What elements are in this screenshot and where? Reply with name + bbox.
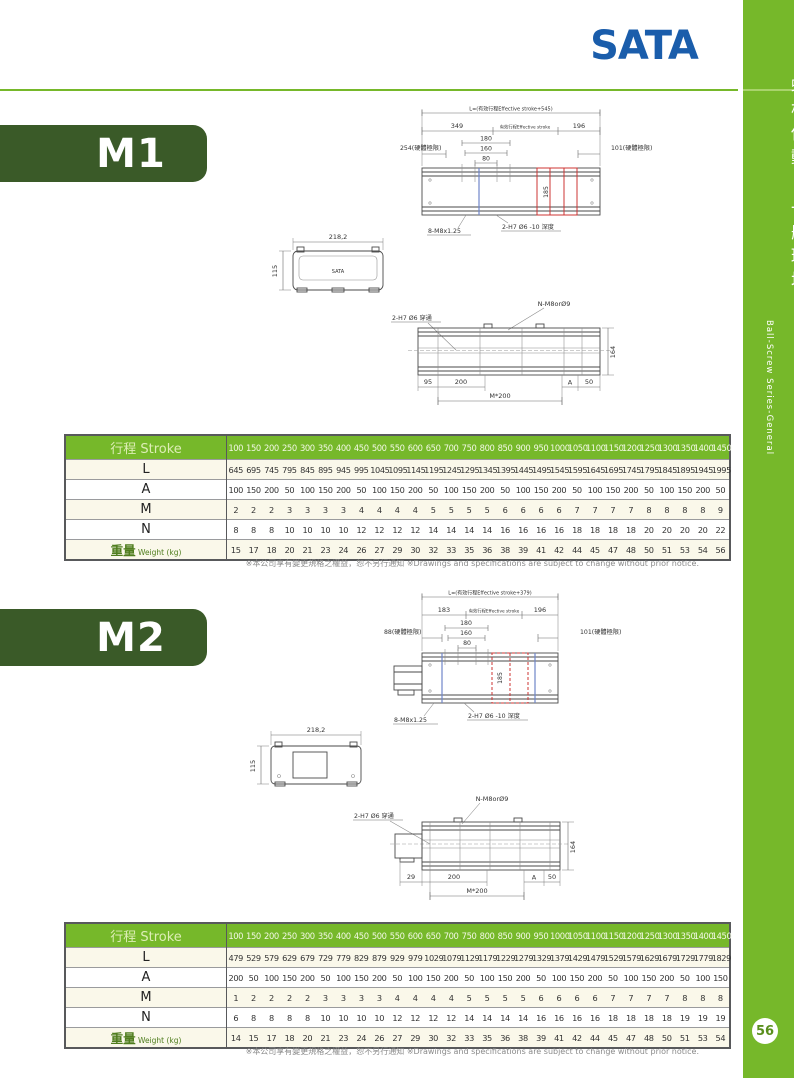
m2-dim-196: 196 (534, 606, 546, 614)
spec-cell: 2 (262, 500, 280, 520)
spec-cell: 2 (244, 988, 262, 1008)
m2-hard-limit-left: 88(硬體極限) (384, 628, 421, 636)
spec-cell: 27 (370, 540, 388, 561)
spec-cell: 3 (334, 500, 352, 520)
spec-cell: 50 (316, 968, 334, 988)
m2-side-view-drawing: N-M8orØ9 2-H7 Ø6 穿通 164 29 200 A 50 M*20… (350, 790, 587, 912)
spec-cell: 18 (658, 1008, 676, 1028)
spec-cell: 24 (334, 540, 352, 561)
spec-cell: 1445 (514, 460, 532, 480)
spec-cell: 150 (532, 480, 550, 500)
spec-cell: 100 (334, 968, 352, 988)
m1-dim-A: A (568, 379, 573, 387)
stroke-header-cell: 450 (352, 923, 370, 948)
stroke-header-cell: 650 (424, 923, 442, 948)
spec-cell: 50 (658, 1028, 676, 1049)
spec-cell: 7 (604, 988, 622, 1008)
spec-cell: 3 (280, 500, 298, 520)
stroke-header-cell: 900 (514, 435, 532, 460)
stroke-header-cell: 400 (334, 435, 352, 460)
m1-dim-185: 185 (543, 186, 550, 198)
spec-cell: 14 (514, 1008, 532, 1028)
spec-cell: 16 (496, 520, 514, 540)
spec-cell: 1029 (424, 948, 442, 968)
spec-cell: 26 (370, 1028, 388, 1049)
m1-length-formula: L=(有效行程Effective stroke+545) (469, 106, 552, 113)
stroke-header-cell: 1250 (640, 923, 658, 948)
spec-cell: 36 (496, 1028, 514, 1049)
stroke-header-cell: 1150 (604, 923, 622, 948)
spec-cell: 100 (694, 968, 712, 988)
m2-section-view-drawing: 218,2 115 (248, 722, 372, 794)
spec-cell: 100 (658, 480, 676, 500)
spec-cell: 12 (388, 520, 406, 540)
stroke-header-cell: 750 (460, 923, 478, 948)
m1-side-view-drawing: N-M8orØ9 2-H7 Ø6 穿通 164 95 200 A 50 M*20… (384, 295, 678, 417)
spec-cell: 33 (460, 1028, 478, 1049)
spec-cell: 8 (262, 520, 280, 540)
m2-section-width: 218,2 (307, 726, 326, 734)
spec-cell: 18 (280, 1028, 298, 1049)
spec-cell: 945 (334, 460, 352, 480)
m2-dim-80: 80 (463, 640, 471, 647)
spec-cell: 779 (334, 948, 352, 968)
spec-cell: 14 (478, 1008, 496, 1028)
spec-cell: 27 (388, 1028, 406, 1049)
spec-cell: 200 (442, 968, 460, 988)
spec-cell: 16 (532, 520, 550, 540)
stroke-header-label: 行程 Stroke (65, 923, 227, 948)
spec-cell: 829 (352, 948, 370, 968)
spec-cell: 12 (424, 1008, 442, 1028)
spec-cell: 16 (568, 1008, 586, 1028)
spec-cell: 50 (388, 968, 406, 988)
stroke-header-cell: 550 (388, 923, 406, 948)
spec-cell: 1479 (586, 948, 604, 968)
spec-cell: 1595 (568, 460, 586, 480)
spec-cell: 995 (352, 460, 370, 480)
spec-cell: 1695 (604, 460, 622, 480)
spec-cell: 48 (622, 540, 640, 561)
spec-cell: 23 (316, 540, 334, 561)
m1-section-width: 218,2 (329, 233, 348, 241)
spec-cell: 1095 (388, 460, 406, 480)
m2-left-holes-label: 2-H7 Ø6 穿通 (354, 812, 394, 820)
spec-cell: 4 (424, 988, 442, 1008)
m1-dim-349: 349 (451, 122, 463, 130)
spec-cell: 2 (227, 500, 245, 520)
spec-cell: 35 (460, 540, 478, 561)
spec-cell: 18 (640, 1008, 658, 1028)
model-name: M1 (96, 131, 166, 177)
spec-cell: 3 (316, 500, 334, 520)
spec-cell: 24 (352, 1028, 370, 1049)
stroke-header-cell: 1450 (712, 435, 730, 460)
spec-cell: 12 (352, 520, 370, 540)
spec-cell: 1779 (694, 948, 712, 968)
spec-cell: 579 (262, 948, 280, 968)
spec-cell: 50 (532, 968, 550, 988)
m2-dim-pitch: M*200 (466, 887, 487, 895)
spec-cell: 1295 (460, 460, 478, 480)
stroke-header-cell: 450 (352, 435, 370, 460)
spec-cell: 2 (244, 500, 262, 520)
row-label: M (65, 988, 227, 1008)
spec-cell: 6 (568, 988, 586, 1008)
page-number-badge: 56 (752, 1018, 778, 1044)
stroke-header-cell: 1300 (658, 923, 676, 948)
spec-cell: 845 (298, 460, 316, 480)
spec-cell: 2 (262, 988, 280, 1008)
stroke-header-cell: 550 (388, 435, 406, 460)
sata-logo: SATA (578, 22, 710, 68)
spec-cell: 15 (244, 1028, 262, 1049)
spec-cell: 42 (568, 1028, 586, 1049)
spec-cell: 100 (262, 968, 280, 988)
m1-dim-160: 160 (480, 146, 492, 153)
spec-cell: 1645 (586, 460, 604, 480)
spec-cell: 729 (316, 948, 334, 968)
spec-cell: 150 (244, 480, 262, 500)
sidebar-title-cn: 螺桿傳動-一般環境 (759, 60, 794, 310)
stroke-header-cell: 800 (478, 923, 496, 948)
spec-cell: 200 (550, 480, 568, 500)
spec-cell: 795 (280, 460, 298, 480)
m2-dim-183: 183 (438, 606, 450, 614)
spec-cell: 5 (478, 988, 496, 1008)
spec-cell: 100 (586, 480, 604, 500)
spec-cell: 8 (244, 520, 262, 540)
spec-cell: 50 (424, 480, 442, 500)
row-label: N (65, 520, 227, 540)
spec-cell: 53 (676, 540, 694, 561)
spec-cell: 200 (478, 480, 496, 500)
spec-cell: 100 (370, 480, 388, 500)
spec-cell: 16 (514, 520, 532, 540)
stroke-header-cell: 1100 (586, 923, 604, 948)
m1-left-holes-label: 2-H7 Ø6 穿通 (392, 314, 432, 322)
spec-cell: 14 (227, 1028, 245, 1049)
stroke-header-cell: 700 (442, 923, 460, 948)
spec-cell: 479 (227, 948, 245, 968)
row-label: 重量 Weight (kg) (65, 540, 227, 561)
spec-cell: 4 (352, 500, 370, 520)
spec-cell: 100 (622, 968, 640, 988)
spec-cell: 1229 (496, 948, 514, 968)
spec-cell: 100 (442, 480, 460, 500)
spec-cell: 150 (460, 480, 478, 500)
stroke-header-cell: 800 (478, 435, 496, 460)
model-name: M2 (96, 615, 166, 661)
spec-cell: 3 (334, 988, 352, 1008)
m1-section-height: 115 (271, 265, 279, 277)
spec-cell: 50 (460, 968, 478, 988)
spec-cell: 10 (334, 520, 352, 540)
spec-cell: 1145 (406, 460, 424, 480)
spec-cell: 21 (298, 540, 316, 561)
row-label: L (65, 948, 227, 968)
m2-effective-stroke-label: 有效行程Effective stroke (469, 608, 520, 615)
spec-cell: 20 (676, 520, 694, 540)
spec-cell: 879 (370, 948, 388, 968)
spec-cell: 54 (694, 540, 712, 561)
spec-cell: 14 (442, 520, 460, 540)
stroke-header-cell: 250 (280, 435, 298, 460)
spec-cell: 8 (280, 1008, 298, 1028)
spec-cell: 1579 (622, 948, 640, 968)
spec-cell: 16 (586, 1008, 604, 1028)
m1-top-view-drawing: L=(有效行程Effective stroke+545) 349 有效行程Eff… (398, 102, 670, 238)
stroke-header-cell: 1350 (676, 923, 694, 948)
m1-effective-stroke-label: 有效行程Effective stroke (500, 124, 551, 131)
table-row: A200501001502005010015020050100150200501… (65, 968, 730, 988)
stroke-header-cell: 100 (227, 435, 245, 460)
spec-cell: 150 (640, 968, 658, 988)
spec-cell: 18 (568, 520, 586, 540)
stroke-header-cell: 1200 (622, 435, 640, 460)
spec-cell: 1045 (370, 460, 388, 480)
model-banner-m1: M1 (0, 125, 207, 182)
spec-cell: 1679 (658, 948, 676, 968)
spec-cell: 41 (532, 540, 550, 561)
spec-cell: 36 (478, 540, 496, 561)
spec-cell: 8 (676, 988, 694, 1008)
spec-cell: 6 (550, 988, 568, 1008)
spec-cell: 50 (496, 480, 514, 500)
spec-cell: 16 (532, 1008, 550, 1028)
spec-cell: 1745 (622, 460, 640, 480)
stroke-header-cell: 1400 (694, 435, 712, 460)
spec-cell: 6 (496, 500, 514, 520)
stroke-header-cell: 150 (244, 435, 262, 460)
stroke-header-cell: 950 (532, 435, 550, 460)
spec-cell: 50 (640, 480, 658, 500)
m1-dim-196: 196 (573, 122, 585, 130)
m1-holes-label: 2-H7 Ø6 -10 深度 (502, 223, 554, 231)
spec-cell: 4 (388, 500, 406, 520)
spec-cell: 1545 (550, 460, 568, 480)
spec-cell: 200 (586, 968, 604, 988)
m1-hard-limit-left: 254(硬體極限) (400, 144, 441, 152)
table-row: A100150200501001502005010015020050100150… (65, 480, 730, 500)
table-row: M1222233334444555566667777888 (65, 988, 730, 1008)
spec-cell: 200 (227, 968, 245, 988)
spec-cell: 1345 (478, 460, 496, 480)
spec-cell: 150 (604, 480, 622, 500)
spec-cell: 929 (388, 948, 406, 968)
spec-cell: 10 (334, 1008, 352, 1028)
spec-cell: 19 (694, 1008, 712, 1028)
m2-dim-160: 160 (460, 630, 472, 637)
stroke-header-cell: 1400 (694, 923, 712, 948)
m2-dim-185: 185 (497, 672, 504, 684)
spec-cell: 50 (604, 968, 622, 988)
spec-cell: 54 (712, 1028, 730, 1049)
m2-dim-A: A (532, 874, 537, 882)
spec-cell: 48 (640, 1028, 658, 1049)
spec-cell: 8 (640, 500, 658, 520)
m1-dim-pitch: M*200 (489, 392, 510, 400)
catalog-page: SATA 螺桿傳動-一般環境 Ball-Screw Series-General… (0, 0, 794, 1078)
spec-cell: 4 (388, 988, 406, 1008)
spec-cell: 5 (460, 988, 478, 1008)
spec-cell: 44 (586, 1028, 604, 1049)
m2-dim-200: 200 (448, 873, 460, 881)
stroke-header-cell: 950 (532, 923, 550, 948)
spec-cell: 12 (388, 1008, 406, 1028)
stroke-header-cell: 250 (280, 923, 298, 948)
spec-cell: 200 (406, 480, 424, 500)
stroke-header-cell: 350 (316, 435, 334, 460)
spec-cell: 7 (640, 988, 658, 1008)
stroke-header-cell: 700 (442, 435, 460, 460)
stroke-header-cell: 500 (370, 435, 388, 460)
table-row: M2223333444455556666777788889 (65, 500, 730, 520)
disclaimer-text: ※本公司享有變更規格之權益，恕不另行通知 ※Drawings and speci… (64, 1046, 731, 1057)
stroke-header-cell: 100 (227, 923, 245, 948)
spec-cell: 14 (460, 1008, 478, 1028)
m2-dim-50: 50 (548, 873, 556, 881)
stroke-header-cell: 1000 (550, 923, 568, 948)
spec-cell: 8 (658, 500, 676, 520)
row-label: N (65, 1008, 227, 1028)
page-number: 56 (756, 1024, 774, 1039)
spec-cell: 18 (604, 1008, 622, 1028)
spec-cell: 1329 (532, 948, 550, 968)
spec-cell: 150 (712, 968, 730, 988)
m1-dim-80: 80 (482, 156, 490, 163)
spec-cell: 26 (352, 540, 370, 561)
spec-cell: 41 (550, 1028, 568, 1049)
spec-cell: 32 (442, 1028, 460, 1049)
spec-cell: 16 (550, 520, 568, 540)
spec-cell: 629 (280, 948, 298, 968)
spec-cell: 4 (406, 500, 424, 520)
spec-cell: 53 (694, 1028, 712, 1049)
stroke-header-cell: 1100 (586, 435, 604, 460)
spec-cell: 29 (406, 1028, 424, 1049)
spec-cell: 7 (568, 500, 586, 520)
spec-cell: 6 (550, 500, 568, 520)
spec-cell: 100 (298, 480, 316, 500)
m1-dim-164: 164 (609, 346, 617, 358)
m2-dim-164: 164 (569, 841, 577, 853)
row-label: A (65, 968, 227, 988)
stroke-header-label: 行程 Stroke (65, 435, 227, 460)
spec-cell: 3 (352, 988, 370, 1008)
spec-cell: 12 (406, 520, 424, 540)
spec-cell: 33 (442, 540, 460, 561)
m2-length-formula: L=(有效行程Effective stroke+379) (448, 590, 531, 597)
spec-cell: 14 (460, 520, 478, 540)
spec-cell: 3 (316, 988, 334, 1008)
spec-cell: 8 (712, 988, 730, 1008)
spec-cell: 200 (694, 480, 712, 500)
spec-cell: 150 (496, 968, 514, 988)
spec-cell: 1429 (568, 948, 586, 968)
m1-spec-table-wrap: 行程 Stroke1001502002503003504004505005506… (64, 434, 731, 561)
spec-cell: 100 (406, 968, 424, 988)
spec-cell: 1195 (424, 460, 442, 480)
stroke-header-cell: 1250 (640, 435, 658, 460)
spec-cell: 200 (298, 968, 316, 988)
spec-cell: 7 (622, 500, 640, 520)
spec-cell: 12 (370, 520, 388, 540)
spec-cell: 200 (622, 480, 640, 500)
spec-cell: 8 (227, 520, 245, 540)
spec-cell: 5 (460, 500, 478, 520)
spec-cell: 8 (676, 500, 694, 520)
model-banner-m2: M2 (0, 609, 207, 666)
spec-cell: 1829 (712, 948, 730, 968)
table-row: L479529579629679729779829879929979102910… (65, 948, 730, 968)
table-row: N688881010101012121212141414141616161618… (65, 1008, 730, 1028)
stroke-header-cell: 350 (316, 923, 334, 948)
spec-cell: 10 (280, 520, 298, 540)
spec-cell: 645 (227, 460, 245, 480)
m2-section-height: 115 (249, 760, 257, 772)
m2-hard-limit-right: 101(硬體極限) (580, 628, 621, 636)
m1-dim-50: 50 (585, 378, 593, 386)
spec-cell: 8 (262, 1008, 280, 1028)
spec-cell: 529 (244, 948, 262, 968)
spec-cell: 50 (352, 480, 370, 500)
spec-cell: 30 (406, 540, 424, 561)
spec-cell: 1495 (532, 460, 550, 480)
stroke-header-cell: 1350 (676, 435, 694, 460)
spec-cell: 6 (532, 500, 550, 520)
spec-cell: 12 (442, 1008, 460, 1028)
spec-cell: 20 (658, 520, 676, 540)
spec-cell: 5 (496, 988, 514, 1008)
spec-cell: 3 (370, 988, 388, 1008)
spec-cell: 1079 (442, 948, 460, 968)
spec-cell: 979 (406, 948, 424, 968)
spec-cell: 50 (640, 540, 658, 561)
spec-cell: 51 (658, 540, 676, 561)
spec-cell: 1279 (514, 948, 532, 968)
spec-cell: 1529 (604, 948, 622, 968)
spec-cell: 5 (442, 500, 460, 520)
spec-cell: 18 (604, 520, 622, 540)
spec-cell: 56 (712, 540, 730, 561)
table-row: L645695745795845895945995104510951145119… (65, 460, 730, 480)
spec-cell: 895 (316, 460, 334, 480)
spec-cell: 14 (496, 1008, 514, 1028)
spec-cell: 150 (352, 968, 370, 988)
spec-cell: 150 (424, 968, 442, 988)
spec-cell: 4 (370, 500, 388, 520)
spec-cell: 1629 (640, 948, 658, 968)
spec-cell: 18 (622, 1008, 640, 1028)
spec-cell: 8 (298, 1008, 316, 1028)
sata-logo-text: SATA (590, 23, 699, 68)
table-row: 重量 Weight (kg)14151718202123242627293032… (65, 1028, 730, 1049)
spec-cell: 7 (604, 500, 622, 520)
spec-cell: 50 (280, 480, 298, 500)
stroke-header-cell: 300 (298, 435, 316, 460)
spec-cell: 100 (478, 968, 496, 988)
spec-cell: 6 (586, 988, 604, 1008)
stroke-header-cell: 850 (496, 923, 514, 948)
m1-hard-limit-right: 101(硬體極限) (611, 144, 652, 152)
spec-cell: 10 (370, 1008, 388, 1028)
spec-cell: 38 (496, 540, 514, 561)
spec-cell: 20 (640, 520, 658, 540)
spec-cell: 50 (244, 968, 262, 988)
spec-cell: 20 (280, 540, 298, 561)
stroke-header-cell: 300 (298, 923, 316, 948)
